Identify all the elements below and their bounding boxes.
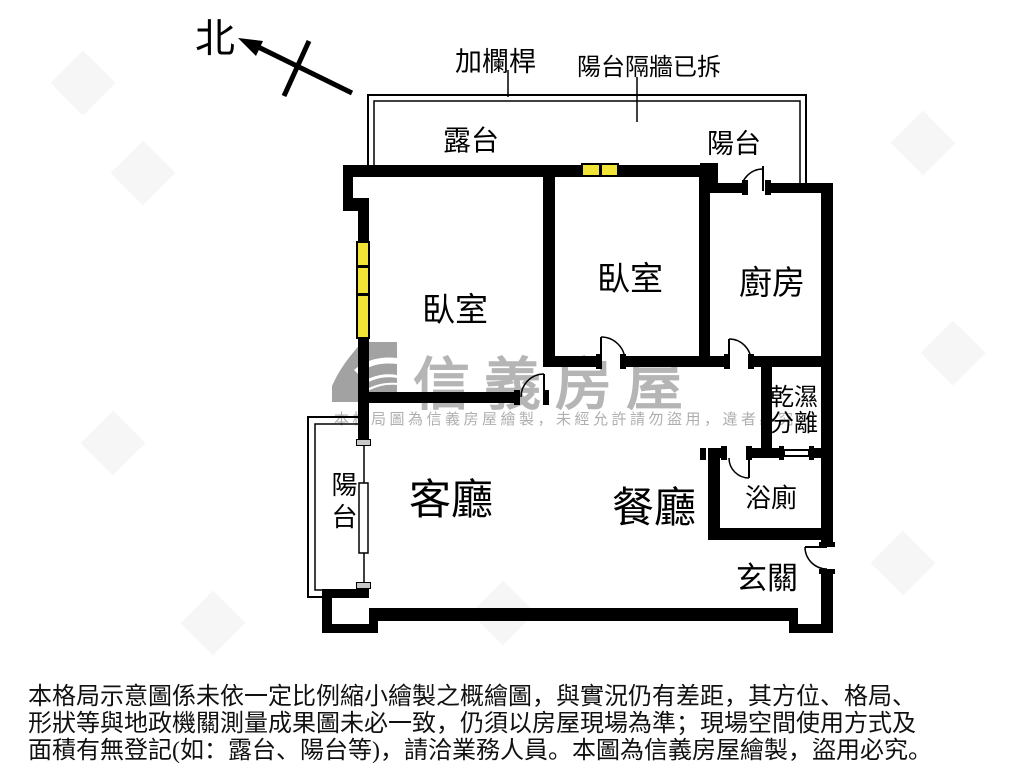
bedroom-middle-door-arc	[601, 337, 625, 361]
bedroom-middle-label: 臥室	[597, 252, 663, 300]
bathroom-label: 浴廁	[745, 478, 797, 515]
kitchen-balcony-door-arc	[741, 169, 763, 191]
floor-plan: 信義房屋 本格局圖為信義房屋繪製，未經允許請勿盜用，違者必究	[0, 0, 1024, 768]
balcony-left-label: 陽台	[324, 471, 361, 535]
partition-removed-label: 陽台隔牆已拆	[577, 47, 721, 82]
north-label: 北	[195, 6, 235, 64]
disclaimer-line1: 本格局示意圖係未依一定比例縮小繪製之概繪圖，與實況仍有差距，其方位、格局、	[28, 684, 1003, 711]
north-arrow-shaft	[250, 43, 352, 93]
kitchen-label: 廚房	[739, 256, 805, 304]
entry-label: 玄關	[736, 553, 798, 598]
bedroom-left-door-arc	[521, 374, 544, 397]
terrace-label: 露台	[443, 119, 499, 159]
add-railing-label: 加欄桿	[455, 40, 536, 79]
bedroom-left-label: 臥室	[422, 283, 488, 331]
disclaimer-line3: 面積有無登記(如：露台、陽台等)，請洽業務人員。本圖為信義房屋繪製，盜用必究。	[28, 738, 1003, 765]
dry-wet-line2: 分離	[770, 411, 818, 437]
plan-linework	[0, 0, 1024, 768]
north-arrow-head	[238, 38, 263, 56]
dry-wet-line1: 乾濕	[770, 385, 818, 411]
disclaimer-line2: 形狀等與地政機關測量成果圖未必一致，仍須以房屋現場為準；現場空間使用方式及	[28, 711, 1003, 738]
bathroom-door-arc	[729, 458, 749, 478]
dry-wet-label: 乾濕 分離	[761, 385, 827, 437]
dining-room-label: 餐廳	[612, 474, 696, 535]
living-room-label: 客廳	[409, 466, 493, 527]
kitchen-dining-door-arc	[729, 339, 751, 361]
entry-door-arc	[805, 547, 827, 569]
disclaimer: 本格局示意圖係未依一定比例縮小繪製之概繪圖，與實況仍有差距，其方位、格局、 形狀…	[28, 684, 1003, 765]
balcony-top-label: 陽台	[707, 122, 761, 161]
